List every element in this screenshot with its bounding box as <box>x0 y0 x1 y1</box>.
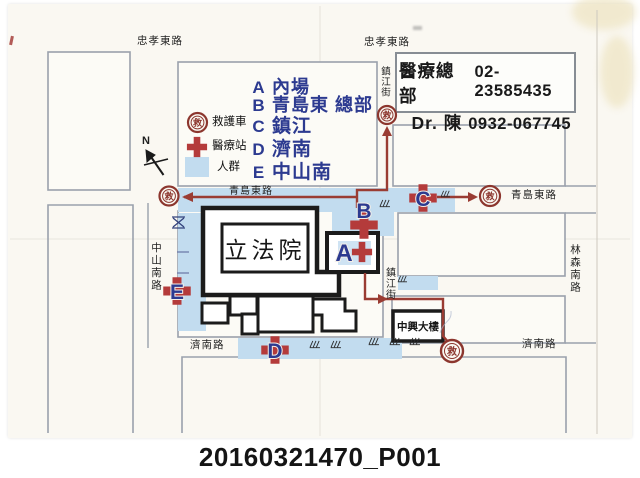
scanned-map-page: 救 救 救 救 救 B C D E A 忠孝東路 忠孝東路 青島東路 青島東路 … <box>0 0 640 478</box>
doctor-label: Dr. 陳 <box>412 110 463 135</box>
street-label-jinan-left: 濟南路 <box>190 340 225 351</box>
legend-crowd-label: 人群 <box>217 161 240 173</box>
crowd-legend-swatch <box>185 157 209 177</box>
ambulance-char: 救 <box>485 191 495 202</box>
station-letter-c: C <box>415 188 430 211</box>
legend-ambulance-label: 救護車 <box>212 116 247 128</box>
station-letter-e: E <box>170 281 184 304</box>
street-label-linsen: 林森南路 <box>569 244 580 294</box>
street-label-zhongxiao-left: 忠孝東路 <box>137 36 183 47</box>
legend-aid-station-label: 醫療站 <box>212 140 247 152</box>
ambulance-char: 救 <box>447 345 457 358</box>
station-list-letter: E <box>250 163 267 183</box>
street-label-zhenjiang-top: 鎮江街 <box>379 66 389 98</box>
street-label-zhongxiao-right: 忠孝東路 <box>364 37 410 48</box>
ambulance-char: 救 <box>382 110 392 121</box>
station-letter-a: A <box>335 240 352 267</box>
station-letter-d: D <box>267 340 282 363</box>
street-label-zhenjiang-mid: 鎮江街 <box>383 267 394 300</box>
north-label: N <box>142 136 150 148</box>
street-label-qingdao-mid: 青島東路 <box>229 187 273 198</box>
medical-hq-phone: 02-23585435 <box>475 63 572 101</box>
doctor-phone: 0932-067745 <box>468 115 571 134</box>
street-label-zhongshan: 中山南路 <box>150 242 161 292</box>
zhongxing-building-label: 中興大樓 <box>394 312 442 340</box>
legislative-yuan-label: 立法院 <box>223 226 307 270</box>
scan-filename-caption: 20160321470_P001 <box>0 442 640 473</box>
north-compass <box>144 150 168 175</box>
station-letter-b: B <box>356 200 371 223</box>
station-list-name: 中山南 <box>272 157 332 184</box>
station-list-row-e: E 中山南 <box>250 157 332 184</box>
medical-hq-info: 醫療總部 02-23585435 Dr. 陳 0932-067745 <box>399 58 571 135</box>
street-label-qingdao-right: 青島東路 <box>511 190 557 201</box>
medical-hq-label: 醫療總部 <box>399 58 469 108</box>
ambulance-char: 救 <box>193 117 203 128</box>
ambulance-char: 救 <box>164 191 174 202</box>
street-label-jinan-right: 濟南路 <box>522 339 557 350</box>
